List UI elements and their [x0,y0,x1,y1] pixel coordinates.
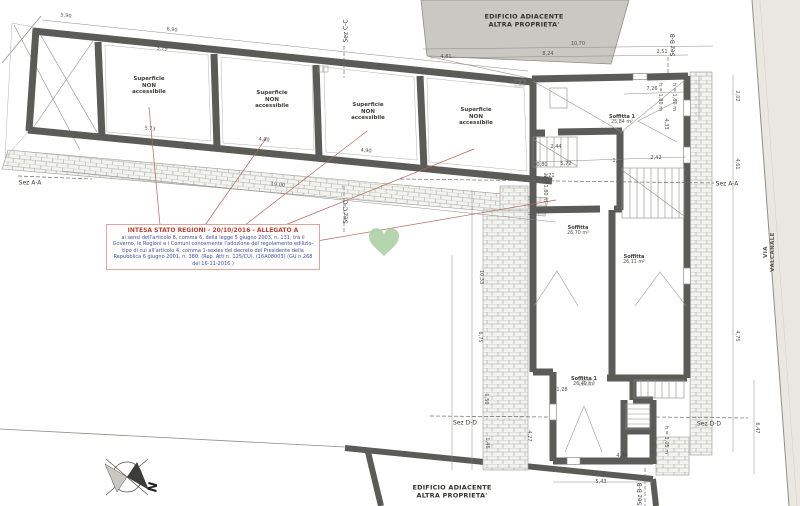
street-label: VIA VALCANALE [763,232,777,272]
legend-box: INTESA STATO REGIONI - 20/10/2016 - ALLE… [106,224,320,270]
adjacent-top-label: EDIFICIO ADIACENTE ALTRA PROPRIETA' [484,13,563,30]
pillar-symbols [318,66,594,385]
heart-watermark-icon [369,228,399,256]
terrace-hatch [2,150,548,216]
adjacent-bottom-label: EDIFICIO ADIACENTE ALTRA PROPRIETA' [412,484,491,501]
north-label: N [145,481,160,492]
adjacent-building-bottom [0,429,656,506]
floor-plan-canvas: EDIFICIO ADIACENTE ALTRA PROPRIETA' EDIF… [0,0,800,506]
north-compass [105,459,149,495]
section-lines [18,46,748,506]
legend-title: INTESA STATO REGIONI - 20/10/2016 - ALLE… [110,227,316,235]
legend-body: ai sensi dell'articolo 8, comma 6, della… [110,235,316,268]
